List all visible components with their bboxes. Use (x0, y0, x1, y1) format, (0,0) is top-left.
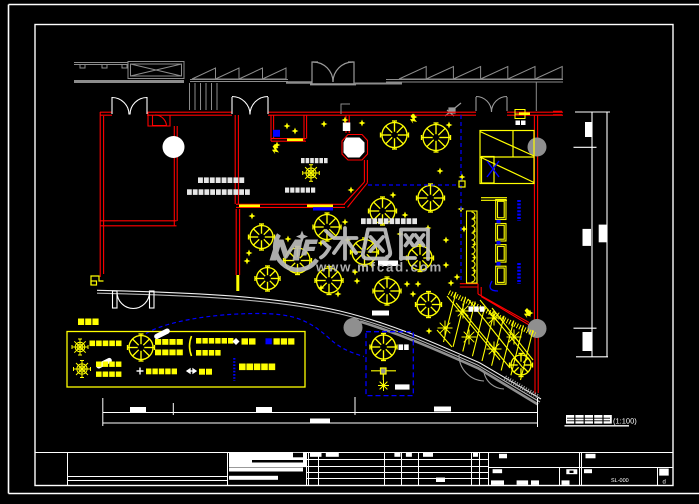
svg-text:SL-000: SL-000 (611, 478, 629, 484)
svg-text:(1:100): (1:100) (613, 417, 637, 426)
svg-text:d: d (663, 479, 666, 486)
svg-text:www.mfcad.com: www.mfcad.com (315, 260, 443, 275)
